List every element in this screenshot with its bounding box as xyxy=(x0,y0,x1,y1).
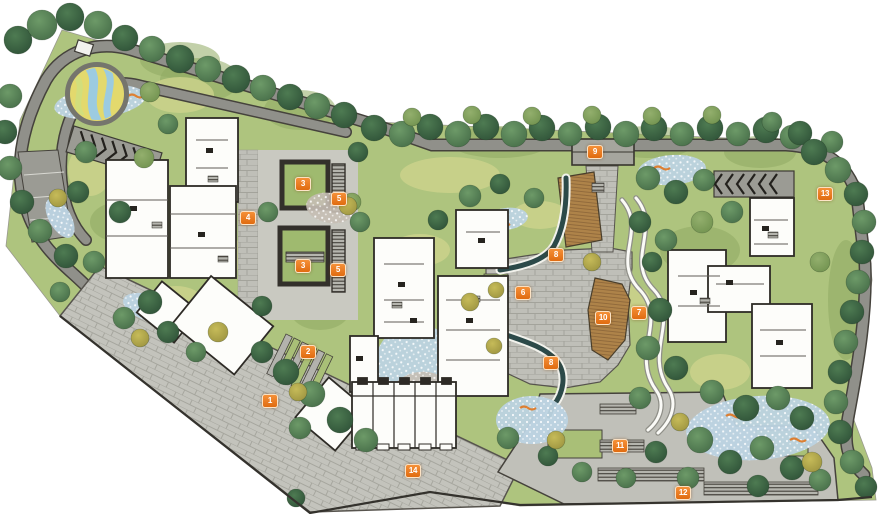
plan-marker-3[interactable]: 3 xyxy=(295,259,311,273)
plan-marker-7[interactable]: 7 xyxy=(631,306,647,320)
plan-marker-4[interactable]: 4 xyxy=(240,211,256,225)
plan-marker-overlay: 1233455678891011121314 xyxy=(0,0,890,514)
plan-marker-2[interactable]: 2 xyxy=(300,345,316,359)
plan-marker-6[interactable]: 6 xyxy=(515,286,531,300)
plan-marker-3[interactable]: 3 xyxy=(295,177,311,191)
plan-marker-14[interactable]: 14 xyxy=(405,464,421,478)
site-plan-canvas: 1233455678891011121314 xyxy=(0,0,890,514)
plan-marker-5[interactable]: 5 xyxy=(330,263,346,277)
plan-marker-10[interactable]: 10 xyxy=(595,311,611,325)
plan-marker-1[interactable]: 1 xyxy=(262,394,278,408)
plan-marker-5[interactable]: 5 xyxy=(331,192,347,206)
plan-marker-9[interactable]: 9 xyxy=(587,145,603,159)
plan-marker-12[interactable]: 12 xyxy=(675,486,691,500)
plan-marker-8[interactable]: 8 xyxy=(543,356,559,370)
plan-marker-11[interactable]: 11 xyxy=(612,439,628,453)
plan-marker-13[interactable]: 13 xyxy=(817,187,833,201)
plan-marker-8[interactable]: 8 xyxy=(548,248,564,262)
